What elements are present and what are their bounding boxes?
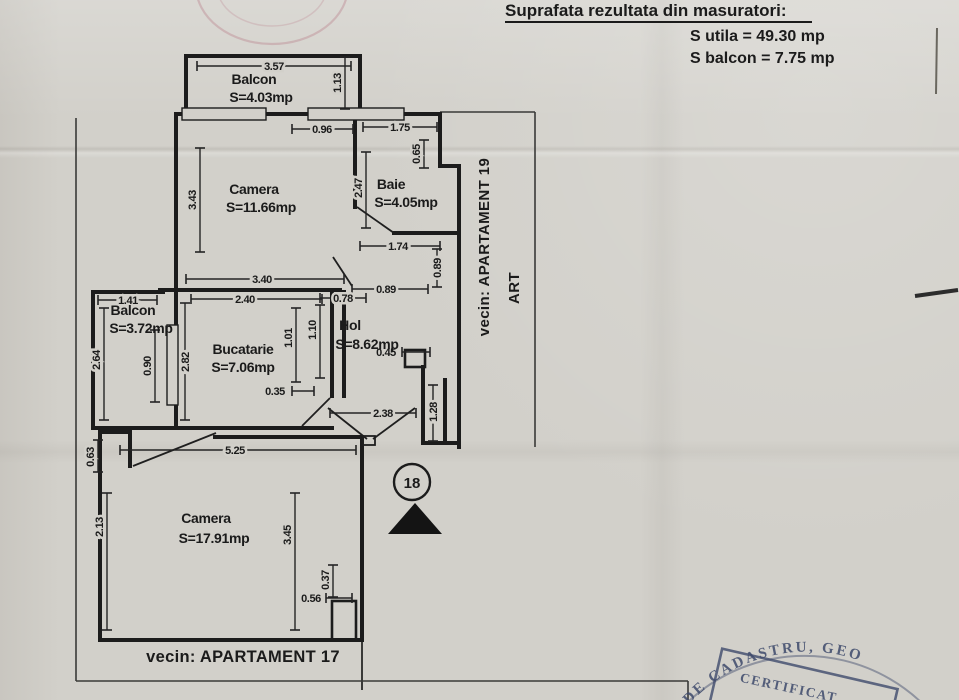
balcony-area-value: S balcon = 7.75 mp: [690, 50, 835, 67]
dim-0-35: 0.35: [265, 386, 314, 398]
room-balcon-top-name: Balcon: [232, 71, 277, 87]
room-camera-top-area: S=11.66mp: [226, 199, 296, 215]
dim-2-40: 2.40: [191, 294, 322, 306]
dim-3-40: 3.40: [186, 274, 344, 286]
window: [167, 325, 178, 405]
svg-text:3.45: 3.45: [282, 525, 294, 545]
svg-text:2.13: 2.13: [94, 517, 106, 537]
svg-text:1.01: 1.01: [283, 328, 295, 348]
summary-title: Suprafata rezultata din masuratori:: [505, 1, 787, 20]
dim-1-13: 1.13: [332, 57, 350, 109]
svg-text:0.90: 0.90: [142, 356, 154, 376]
neighbor-right: vecin: APARTAMENT 19: [476, 158, 493, 337]
dim-0-56: 0.56: [301, 593, 352, 605]
svg-text:1.74: 1.74: [388, 241, 409, 253]
dim-2-38: 2.38: [330, 408, 416, 420]
window: [182, 108, 266, 120]
svg-text:5.25: 5.25: [225, 445, 245, 457]
room-baie-name: Baie: [377, 176, 406, 192]
svg-text:1.10: 1.10: [307, 320, 319, 340]
dim-3-43: 3.43: [187, 148, 205, 252]
dim-2-13: 2.13: [94, 493, 112, 630]
dim-1-28: 1.28: [428, 385, 440, 441]
svg-text:0.37: 0.37: [320, 570, 332, 590]
svg-text:0.63: 0.63: [85, 447, 97, 467]
dim-5-25: 5.25: [120, 445, 356, 457]
svg-text:0.96: 0.96: [312, 124, 332, 136]
svg-text:2.82: 2.82: [180, 352, 192, 372]
dim-0-89-h: 0.89: [352, 284, 428, 296]
svg-text:2.40: 2.40: [235, 294, 255, 306]
dim-0-90: 0.90: [142, 330, 160, 402]
dim-0-65: 0.65: [411, 140, 429, 168]
apartment-number: 18: [404, 475, 421, 492]
room-hol-area: S=8.62mp: [335, 336, 398, 352]
room-bucatarie-name: Bucatarie: [212, 341, 274, 357]
svg-text:0.78: 0.78: [333, 293, 353, 305]
useful-area-value: S utila = 49.30 mp: [690, 28, 825, 45]
svg-text:1.75: 1.75: [390, 122, 410, 134]
neighbor-bottom: vecin: APARTAMENT 17: [146, 648, 340, 666]
svg-text:2.38: 2.38: [373, 408, 393, 420]
dim-0-89-v: 0.89: [432, 249, 444, 287]
svg-text:1.28: 1.28: [428, 402, 440, 422]
room-labels: Balcon S=4.03mp Camera S=11.66mp Baie S=…: [109, 71, 437, 546]
faint-round-stamp: [196, 0, 348, 44]
dim-1-01: 1.01: [283, 308, 301, 382]
dim-0-96: 0.96: [292, 124, 353, 136]
svg-text:3.43: 3.43: [187, 190, 199, 210]
neighbor-right-partial: ART: [506, 272, 523, 304]
svg-text:0.65: 0.65: [411, 144, 423, 164]
page-edge-marks: [915, 28, 958, 296]
dim-0-37: 0.37: [320, 565, 338, 597]
room-camera-top-name: Camera: [229, 181, 279, 197]
neighbor-labels: vecin: APARTAMENT 19 ART vecin: APARTAME…: [146, 158, 523, 666]
svg-text:0.89: 0.89: [376, 284, 396, 296]
svg-text:3.40: 3.40: [252, 274, 272, 286]
svg-text:0.35: 0.35: [265, 386, 285, 398]
dim-3-45: 3.45: [282, 493, 300, 630]
dim-2-82: 2.82: [180, 303, 192, 420]
room-hol-name: Hol: [339, 317, 361, 333]
svg-text:2.47: 2.47: [353, 178, 365, 198]
measurement-summary: Suprafata rezultata din masuratori: S ut…: [505, 1, 835, 67]
dim-0-78: 0.78: [320, 293, 366, 305]
apartment-walls: [93, 56, 459, 640]
room-bucatarie-area: S=7.06mp: [211, 359, 274, 375]
floorplan-canvas: Suprafata rezultata din masuratori: S ut…: [0, 0, 959, 700]
room-balcon-left-name: Balcon: [111, 302, 156, 318]
svg-text:2.64: 2.64: [91, 349, 103, 370]
apartment-number-marker: 18: [394, 464, 430, 500]
svg-text:0.56: 0.56: [301, 593, 321, 605]
room-balcon-top-area: S=4.03mp: [229, 89, 292, 105]
north-arrow-icon: [388, 503, 442, 534]
svg-text:1.13: 1.13: [332, 73, 344, 93]
room-balcon-left-area: S=3.72mp: [109, 320, 172, 336]
dim-1-10: 1.10: [307, 305, 325, 378]
room-baie-area: S=4.05mp: [374, 194, 437, 210]
dim-1-74: 1.74: [360, 241, 440, 253]
room-camera-bottom-name: Camera: [181, 510, 231, 526]
room-camera-bottom-area: S=17.91mp: [179, 530, 250, 546]
dim-1-75: 1.75: [363, 122, 437, 134]
cadastru-stamp: NAL DE CADASTRU, GEO CERTIFICAT: [646, 639, 956, 700]
svg-text:0.89: 0.89: [432, 258, 444, 278]
window: [308, 108, 404, 120]
stamp-box-text: CERTIFICAT: [739, 670, 839, 700]
